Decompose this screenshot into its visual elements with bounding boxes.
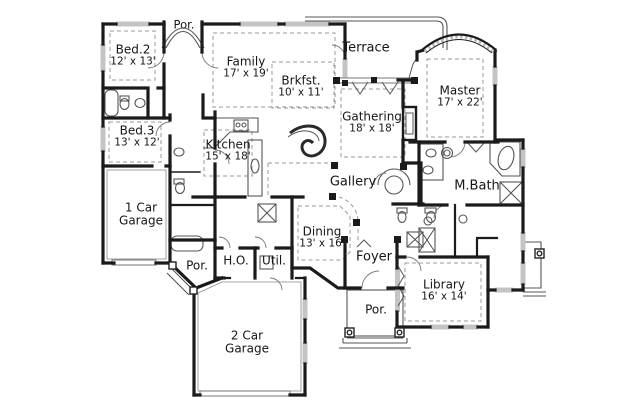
room-label-gallery: Gallery <box>330 176 376 191</box>
room-label-util: Util. <box>262 254 286 267</box>
floor-plan-drawing <box>0 0 620 415</box>
room-label-por-bottom: Por. <box>365 303 387 316</box>
room-label-garage1: 1 CarGarage <box>119 202 163 229</box>
fireplace-inner <box>406 113 413 134</box>
room-label-terrace: Terrace <box>342 42 389 57</box>
room-label-library: Library16' x 14' <box>421 278 466 303</box>
floor-plan-page: Por. Bed.212' x 13' Family17' x 19' Brkf… <box>0 0 620 415</box>
room-label-master: Master17' x 22' <box>437 84 482 109</box>
room-label-por-left: Por. <box>186 259 208 272</box>
room-label-foyer: Foyer <box>356 251 392 266</box>
piers <box>329 77 418 243</box>
master-bay-window <box>417 35 496 54</box>
room-label-family: Family17' x 19' <box>223 55 268 80</box>
room-label-por-top: Por. <box>174 19 195 32</box>
room-label-dining: Dining13' x 16' <box>299 225 344 250</box>
room-label-brkfst: Brkfst.10' x 11' <box>278 74 323 99</box>
room-label-kitchen: Kitchen15' x 18' <box>205 138 250 163</box>
room-label-bed3: Bed.313' x 12' <box>114 124 159 149</box>
room-label-ho: H.O. <box>223 254 248 267</box>
room-label-mbath: M.Bath <box>454 180 500 195</box>
room-label-garage2: 2 CarGarage <box>225 330 269 357</box>
room-label-gathering: Gathering18' x 18' <box>342 110 402 135</box>
room-label-bed2: Bed.212' x 13' <box>110 43 155 68</box>
